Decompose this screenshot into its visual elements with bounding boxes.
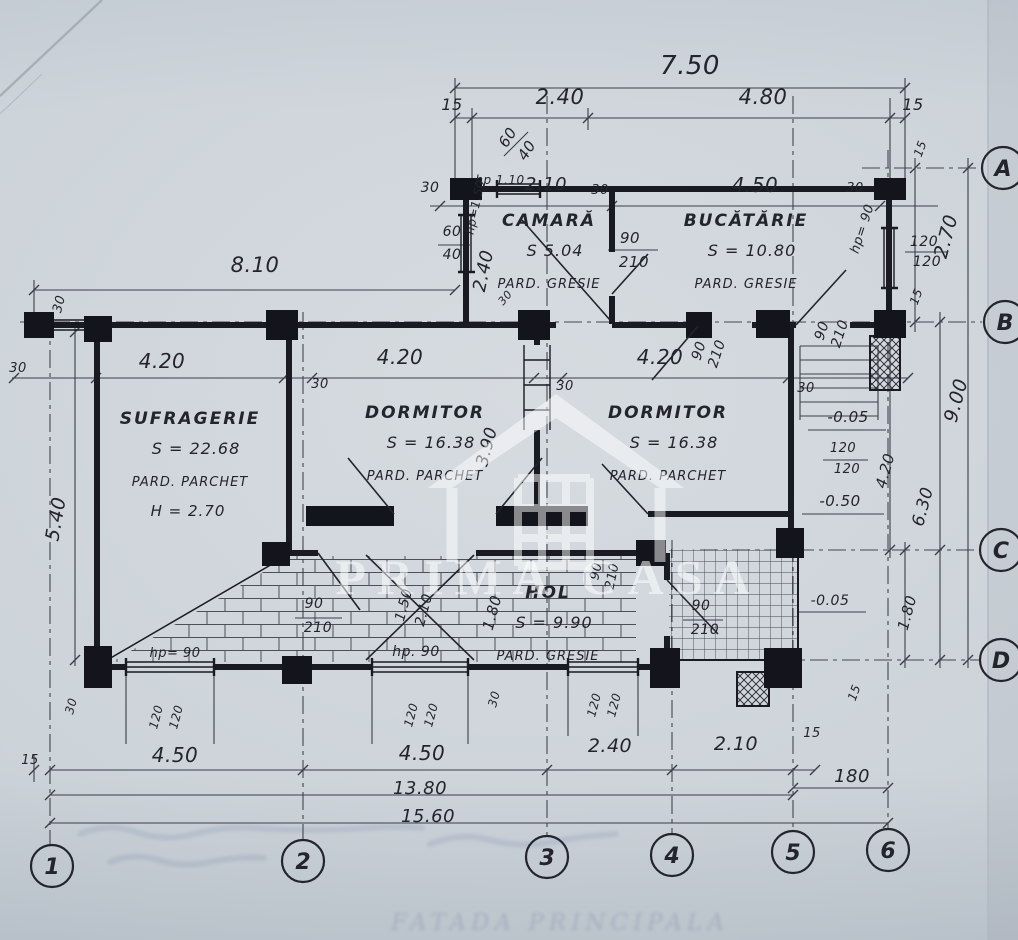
dim-label: 30 — [62, 696, 80, 715]
dim-label: 30 — [9, 361, 27, 376]
grid-row-bubble-label: C — [993, 539, 1009, 564]
dim-label: -0.05 — [827, 408, 868, 426]
room-name: BUCĂTĂRIE — [684, 209, 809, 231]
dim-label: 15 — [803, 726, 821, 741]
dim-label: 90 — [305, 596, 324, 612]
room-floor: PARD. GRESIE — [694, 277, 797, 292]
dim-label: 4.50 — [399, 741, 446, 765]
room-area: S 5.04 — [527, 241, 584, 260]
dim-label: hp= 90 — [149, 646, 200, 661]
dim-label: 4.20 — [139, 349, 186, 373]
dim-label: 30 — [50, 294, 69, 315]
dim-label: 4.20 — [637, 345, 684, 369]
room-area: S = 16.38 — [387, 433, 476, 452]
room-floor: PARD. GRESIE — [497, 277, 600, 292]
dim-label: 120 — [834, 462, 860, 477]
dim-label: 60 — [495, 124, 521, 151]
dim-label: 6.30 — [908, 485, 938, 529]
dim-label: 40 — [514, 137, 540, 164]
dim-label: 15 — [21, 753, 39, 768]
room-area: S = 9.90 — [515, 613, 592, 632]
room-floor: PARD. GRESIE — [496, 649, 599, 664]
room-area: S = 10.80 — [708, 241, 797, 260]
dim-label: 30 — [797, 381, 815, 396]
dim-label: 4.50 — [732, 173, 779, 197]
dim-label: 120 — [146, 703, 166, 730]
dim-label: 4.20 — [872, 451, 899, 490]
labels-layer: 7.50152.404.8015604030hp 1.102.10304.503… — [9, 51, 972, 827]
dim-label: 13.80 — [393, 778, 447, 799]
dim-label: 30 — [591, 183, 609, 198]
dim-label: 30 — [556, 379, 574, 394]
dim-label: 15 — [845, 683, 864, 703]
dim-label: 90 — [620, 229, 640, 247]
room-height: H = 2.70 — [151, 502, 226, 520]
dim-label: 5.40 — [41, 495, 70, 542]
grid-column-bubble-label: 6 — [880, 839, 895, 864]
dim-label: 15 — [911, 139, 930, 159]
dim-label: 2.40 — [588, 735, 632, 757]
grid-column-bubble-label: 5 — [785, 841, 800, 866]
dim-label: 120 — [421, 701, 441, 728]
dim-label: 2.40 — [469, 248, 498, 294]
grid-row-bubble-label: A — [992, 157, 1011, 182]
dim-label: 40 — [443, 247, 462, 263]
room-area: S = 16.38 — [630, 433, 719, 452]
dim-label: 120 — [830, 441, 856, 456]
dim-label: hp. 90 — [392, 644, 439, 660]
room-area: S = 22.68 — [152, 439, 241, 458]
dim-label: 4.50 — [152, 743, 199, 767]
dim-label: hp= 90 — [848, 202, 878, 255]
dim-label: 30 — [846, 181, 864, 196]
dim-label: 15 — [902, 95, 923, 114]
floor-plan-drawing: 7.50152.404.8015604030hp 1.102.10304.503… — [0, 0, 1018, 940]
dim-label: 120 — [401, 701, 421, 728]
grid-column-bubble-label: 4 — [663, 844, 679, 869]
dim-label: 30 — [485, 689, 503, 708]
room-name: DORMITOR — [608, 403, 728, 423]
dim-label: 210 — [691, 622, 719, 638]
dim-label: 8.10 — [231, 253, 280, 277]
floor-plan-scan: 7.50152.404.8015604030hp 1.102.10304.503… — [0, 0, 1018, 940]
room-name: SUFRAGERIE — [120, 409, 261, 429]
dim-label: -0.05 — [811, 593, 850, 609]
dim-label: 15.60 — [401, 806, 455, 827]
dim-label: 2.10 — [714, 733, 758, 755]
dim-label: 30 — [311, 377, 329, 392]
dim-label: 210 — [705, 338, 729, 370]
dim-label: 2.10 — [525, 174, 567, 195]
dim-label: 60 — [443, 224, 462, 240]
dim-label: 4.80 — [739, 85, 788, 109]
room-name: DORMITOR — [365, 403, 485, 423]
chimney-hatch — [870, 336, 900, 390]
grid-column-bubble-label: 2 — [295, 850, 310, 875]
dim-label: 120 — [584, 691, 604, 718]
room-floor: PARD. PARCHET — [132, 475, 249, 490]
dim-label: 210 — [304, 620, 332, 636]
room-name: CAMARĂ — [502, 209, 596, 231]
dim-label: 15 — [441, 95, 462, 114]
grid-row-bubble-label: D — [992, 649, 1010, 674]
dim-label: 4.20 — [377, 345, 424, 369]
dim-label: 120 — [604, 691, 624, 718]
dim-label: 15 — [907, 287, 926, 307]
dim-label: 1.80 — [894, 593, 921, 632]
dim-label: 210 — [619, 253, 649, 271]
dim-label: 2.40 — [536, 85, 585, 109]
dim-label: 210 — [828, 318, 852, 350]
dim-label: -0.50 — [819, 492, 860, 510]
watermark-text: PRIMA CASA — [335, 549, 760, 605]
ghost-scribbles — [80, 827, 616, 865]
dim-label: 120 — [166, 703, 186, 730]
dim-label: 2.70 — [930, 212, 963, 260]
dim-label: 7.50 — [660, 51, 720, 81]
ghost-text: FATADA PRINCIPALA — [390, 910, 729, 936]
grid-row-bubble-label: B — [997, 311, 1014, 336]
dim-label: 30 — [421, 180, 440, 196]
grid-column-bubble-label: 3 — [539, 846, 554, 871]
dim-label: 180 — [834, 766, 870, 787]
grid-column-bubble-label: 1 — [44, 855, 59, 880]
